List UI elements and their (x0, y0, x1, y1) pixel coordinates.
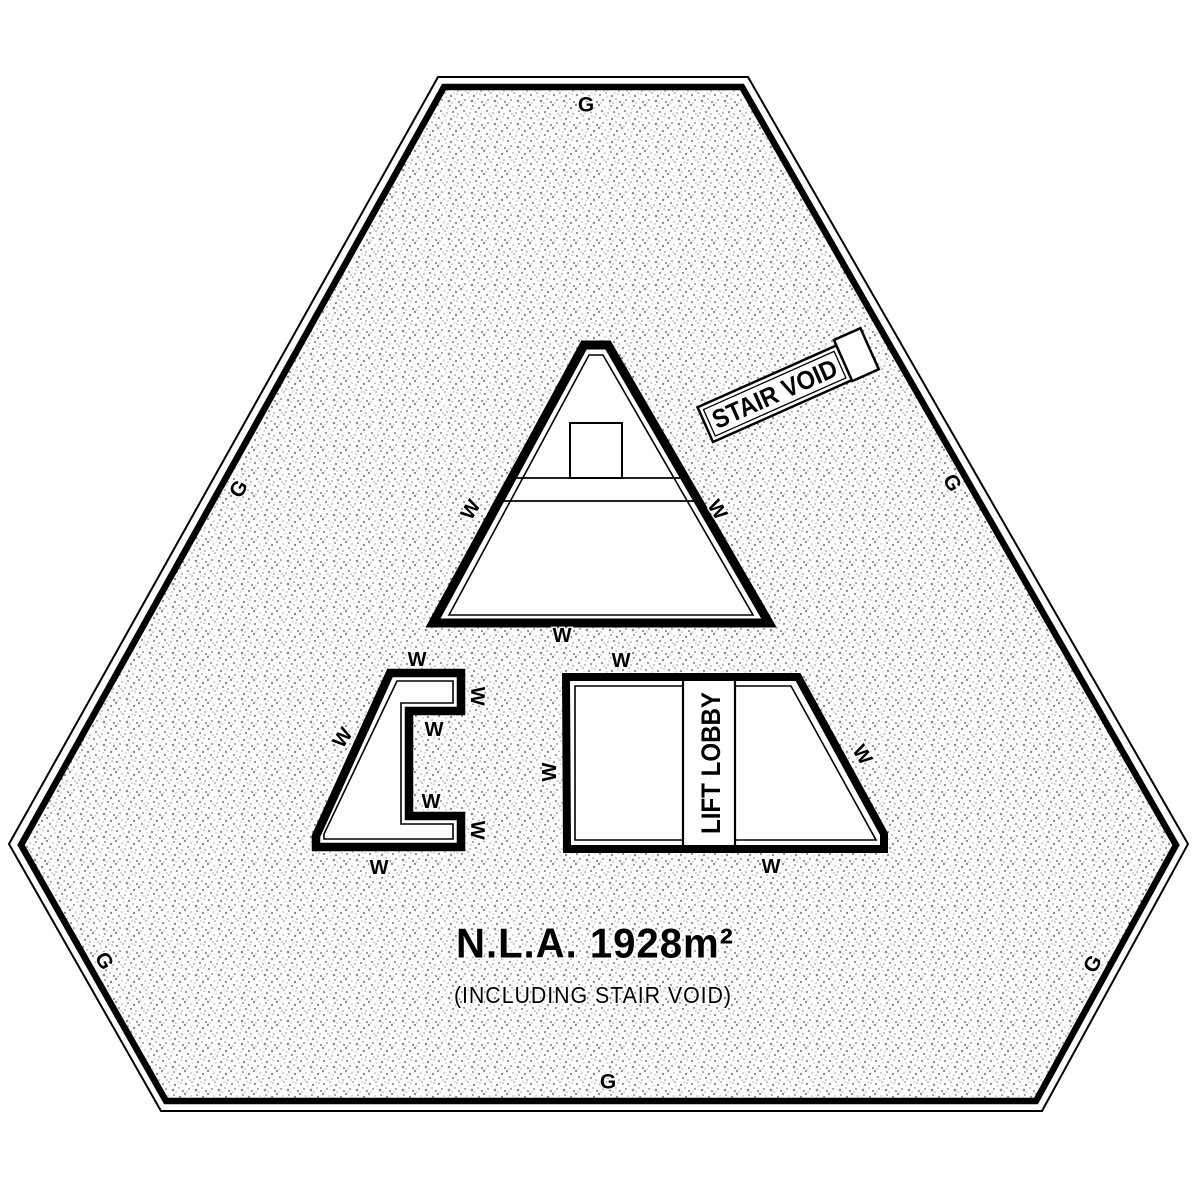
glazing-marker-bottom: G (600, 1071, 616, 1094)
wall-marker-lift-top: W (612, 650, 631, 672)
floor-plan-canvas: LIFT LOBBY STAIR VOID G G G G G G W W W … (0, 0, 1200, 1200)
lift-lobby-label: LIFT LOBBY (696, 692, 726, 834)
wall-marker-core-bottom: W (370, 857, 389, 879)
wall-marker-core-top-right: W (466, 686, 489, 706)
wall-marker-lift-bottom: W (762, 856, 781, 878)
wall-marker-core-bottom-right: W (466, 820, 489, 840)
glazing-marker-top: G (578, 94, 594, 117)
nla-area-label: N.L.A. 1928m² (456, 920, 734, 967)
floor-plan-drawing: LIFT LOBBY STAIR VOID G G G G G G W W W … (0, 0, 1200, 1200)
wall-marker-core-top: W (408, 649, 427, 671)
nla-area-note: (INCLUDING STAIR VOID) (454, 982, 732, 1008)
area-annotation: N.L.A. 1928m² (INCLUDING STAIR VOID) (454, 920, 734, 1009)
wall-marker-lift-left: W (539, 762, 561, 781)
wall-marker-core-notch-top: W (425, 719, 444, 741)
wall-marker-core-notch-bottom: W (422, 791, 441, 813)
stair-shaft-rect (570, 423, 622, 478)
wall-marker-triangle-bottom: W (553, 625, 572, 647)
